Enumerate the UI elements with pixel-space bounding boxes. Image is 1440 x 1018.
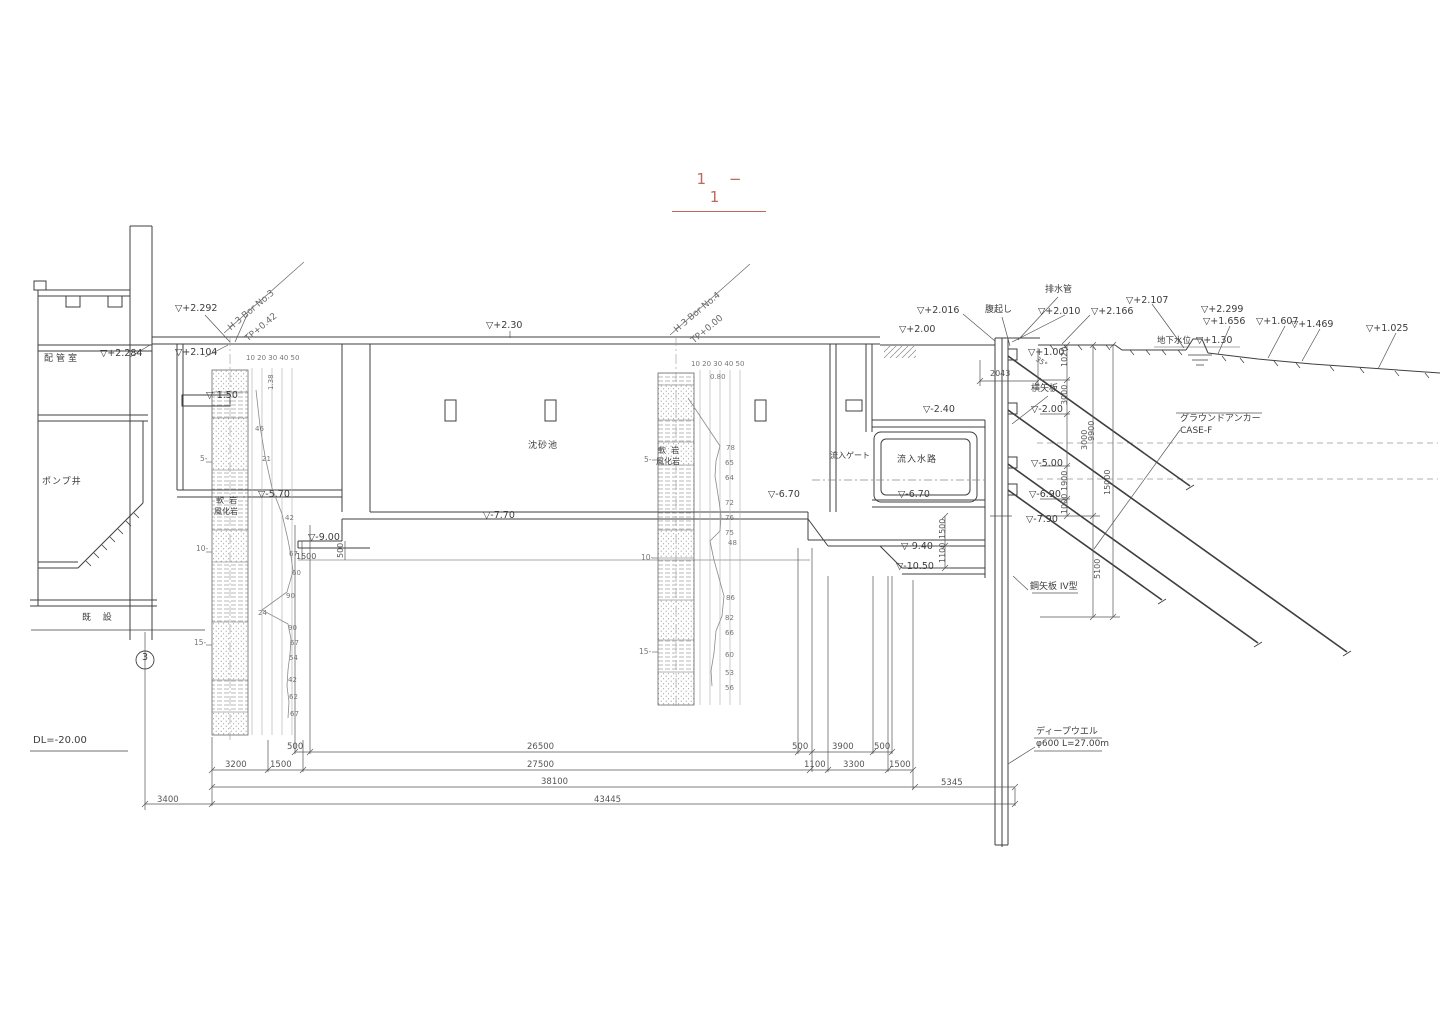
elev-marker: ▽+2.104 [175, 348, 217, 358]
n-value: 60 [292, 570, 301, 577]
n-value: 90 [288, 625, 297, 632]
dim: 3000 [1061, 385, 1069, 405]
n-value: 54 [289, 655, 298, 662]
boring-depth-value: 1.38 [268, 374, 275, 390]
elev-marker: ▽-7.90 [1026, 515, 1058, 525]
n-value: 78 [726, 445, 735, 452]
elev-marker: ▽-7.70 [483, 511, 515, 521]
dim: 1100 [804, 761, 826, 770]
depth-mark: 15- [194, 639, 206, 647]
elev-marker: ▽+1.00 [1028, 348, 1064, 358]
dim: 43445 [594, 796, 621, 805]
n-value: 42 [288, 677, 297, 684]
soil-label: 軟 岩 [658, 447, 679, 455]
n-value: 21 [262, 456, 271, 463]
n-value: 90 [286, 593, 295, 600]
elev-marker: ▽+1.469 [1291, 320, 1333, 330]
elev-marker: ▽+2.30 [486, 321, 522, 331]
n-value: 60 [725, 652, 734, 659]
dim: 1500 [939, 519, 947, 539]
dim: 1500 [296, 553, 316, 561]
dim: 27500 [527, 761, 554, 770]
deepwell-spec: φ600 L=27.00m [1036, 740, 1109, 749]
depth-mark: 10- [196, 545, 208, 553]
dim: 3900 [832, 743, 854, 752]
groundwater-label: 地下水位 [1157, 337, 1191, 346]
room-label-pump-well: ポンプ井 [42, 478, 82, 487]
depth-mark: 15- [639, 648, 651, 656]
elev-marker: ▽+2.010 [1038, 307, 1080, 317]
elev-marker: ▽+2.107 [1126, 296, 1168, 306]
elev-marker: ▽+2.292 [175, 304, 217, 314]
n-value: 62 [289, 694, 298, 701]
n-value: 67 [290, 711, 299, 718]
dim: 1000 [1061, 494, 1069, 514]
n-value: 67 [290, 640, 299, 647]
dim: 1100 [939, 543, 947, 563]
dim: 1900 [1061, 471, 1069, 491]
channel-label: 流入水路 [897, 456, 937, 465]
boring-scale: 10 20 30 40 50 [691, 361, 744, 368]
dim: 500 [874, 743, 890, 752]
dim: 1500 [889, 761, 911, 770]
n-value: 24 [258, 610, 267, 617]
dim: 26500 [527, 743, 554, 752]
grid-number: 3 [142, 653, 148, 663]
elev-marker: ▽-6.70 [898, 490, 930, 500]
n-value: 56 [725, 685, 734, 692]
n-value: 76 [725, 515, 734, 522]
elev-marker: ▽-9.00 [308, 533, 340, 543]
datum-label: DL=-20.00 [33, 736, 87, 747]
dim: 1020 [1061, 347, 1069, 367]
elev-marker: ▽-6.90 [1029, 490, 1061, 500]
elev-marker: ▽-2.40 [923, 405, 955, 415]
elev-marker: ▽-5.70 [258, 490, 290, 500]
room-label-piping: 配管室 [44, 355, 80, 364]
depth-mark: 10- [641, 554, 653, 562]
elev-marker: ▽+2.00 [899, 325, 935, 335]
dim: 5345 [941, 779, 963, 788]
drawing-canvas: 1 − 1 ▽+2.292▽+2.284▽+2.104▽+2.30▽-1.50▽… [0, 0, 1440, 1018]
elev-marker: ▽+1.656 [1203, 317, 1245, 327]
elev-marker: ▽+2.284 [100, 349, 142, 359]
boring-depth-value: 0.80 [710, 374, 726, 381]
dim: 5100 [1094, 559, 1102, 579]
dim: 1500 [270, 761, 292, 770]
depth-mark: 5- [644, 456, 651, 464]
elev-marker: ▽-9.40 [901, 542, 933, 552]
n-value: 75 [725, 530, 734, 537]
deepwell-label: ディープウエル [1036, 728, 1098, 737]
drainpipe-label: 排水管 [1045, 286, 1072, 295]
elev-marker: ▽+1.30 [1196, 336, 1232, 346]
elev-marker: ▽-1.50 [206, 391, 238, 401]
n-value: 53 [725, 670, 734, 677]
n-value: 42 [285, 515, 294, 522]
n-value: 86 [726, 595, 735, 602]
n-value: 72 [725, 500, 734, 507]
n-value: 82 [725, 615, 734, 622]
n-value: 64 [725, 475, 734, 482]
dim: 38100 [541, 778, 568, 787]
basin-label: 沈砂池 [528, 442, 558, 451]
annotation-layer: ▽+2.292▽+2.284▽+2.104▽+2.30▽-1.50▽+2.00▽… [0, 0, 1440, 1018]
elev-marker: ▽-2.00 [1031, 405, 1063, 415]
elev-marker: ▽+2.016 [917, 306, 959, 316]
dim: 15000 [1104, 470, 1112, 495]
soil-label: 軟 岩 [216, 497, 237, 505]
boring-scale: 10 20 30 40 50 [246, 355, 299, 362]
lagging-label: 横矢板 [1031, 385, 1058, 394]
dim: 2043 [990, 370, 1010, 378]
depth-mark: 5- [200, 455, 207, 463]
elev-marker: ▽+1.025 [1366, 324, 1408, 334]
elev-marker: ▽-10.50 [896, 562, 934, 572]
existing-label: 既 設 [82, 614, 114, 623]
sheetpile-label: 鋼矢板 IV型 [1030, 583, 1078, 592]
elev-marker: ▽+2.299 [1201, 305, 1243, 315]
soil-label: 風化岩 [214, 508, 238, 516]
elev-marker: ▽-5.00 [1031, 459, 1063, 469]
n-value: 48 [728, 540, 737, 547]
soil-label: 風化岩 [656, 458, 680, 466]
dim: 3200 [225, 761, 247, 770]
dim: 500 [337, 543, 345, 558]
n-value: 66 [725, 630, 734, 637]
dim: 500 [792, 743, 808, 752]
waler-label: 腹起し [985, 306, 1012, 315]
dim: 500 [287, 743, 303, 752]
n-value: 46 [255, 426, 264, 433]
anchor-label: グラウンドアンカー [1180, 415, 1261, 424]
gate-label: 流入ゲート [830, 452, 870, 460]
dim: 3300 [843, 761, 865, 770]
elev-marker: ▽-6.70 [768, 490, 800, 500]
n-value: 65 [725, 460, 734, 467]
dim: 9900 [1088, 421, 1096, 441]
elev-marker: ▽+2.166 [1091, 307, 1133, 317]
dim: 3400 [157, 796, 179, 805]
anchor-case-label: CASE-F [1180, 427, 1212, 436]
